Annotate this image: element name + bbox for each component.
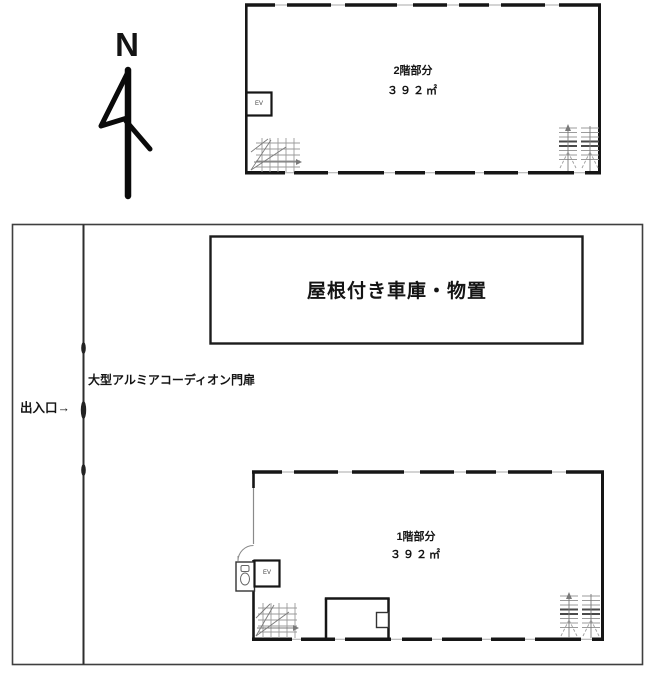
floor1-title: 1階部分 — [376, 528, 456, 544]
floor1-area: ３９２㎡ — [376, 546, 456, 562]
floor1-inner-room — [325, 599, 390, 641]
accordion-gate-label: 大型アルミアコーディオン門扉 — [88, 371, 255, 388]
floor2-stair-left-icon — [251, 138, 302, 172]
floor1-toilet-icon — [236, 562, 255, 591]
floor1-door-swing-icon — [238, 546, 254, 562]
floor1-stair-right-icon — [560, 592, 600, 638]
floor2-stair-right-icon — [559, 124, 599, 171]
floor1-stair-left-icon — [256, 603, 299, 638]
floor2-title: 2階部分 — [373, 62, 453, 78]
floor2-area: ３９２㎡ — [373, 82, 453, 98]
garage-label: 屋根付き車庫・物置 — [211, 236, 583, 343]
north-arrow-icon — [101, 70, 150, 196]
north-label: N — [103, 26, 151, 64]
floor1-elevator-label: EV — [255, 561, 279, 586]
accordion-gate-line — [81, 225, 86, 665]
floor2-elevator-label: EV — [247, 93, 271, 115]
floor-plan-page: N 2階部分 ３９２㎡ EV 屋根付き車庫・物置 大型アルミアコーディオン門扉 … — [0, 0, 648, 675]
entrance-label: 出入口→ — [20, 397, 78, 416]
